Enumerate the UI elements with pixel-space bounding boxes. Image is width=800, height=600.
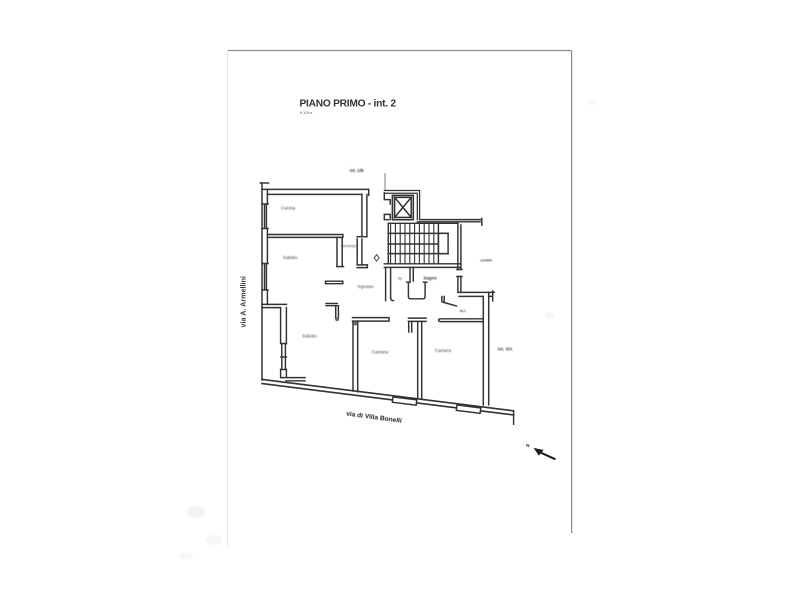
svg-text:int. 3/A: int. 3/A [498, 347, 513, 352]
svg-text:via A. Armellini: via A. Armellini [239, 276, 248, 327]
svg-text:cortile: cortile [480, 257, 493, 262]
svg-text:bagno: bagno [424, 276, 437, 281]
svg-text:Saletto: Saletto [283, 255, 298, 260]
svg-text:w.c: w.c [459, 309, 466, 313]
svg-text:H. 3.00 m: H. 3.00 m [300, 111, 313, 115]
svg-text:Ingresso: Ingresso [358, 284, 375, 289]
svg-text:Salotto: Salotto [302, 333, 317, 338]
svg-text:Camera: Camera [435, 348, 452, 353]
svg-text:Cucina: Cucina [281, 205, 296, 210]
svg-text:rip.: rip. [398, 275, 404, 280]
svg-text:disimpegno: disimpegno [341, 244, 358, 248]
svg-text:N: N [526, 443, 529, 448]
svg-text:int. 1/B: int. 1/B [350, 168, 364, 173]
svg-text:PIANO PRIMO - int. 2: PIANO PRIMO - int. 2 [300, 99, 397, 110]
svg-text:Camera: Camera [372, 349, 389, 354]
